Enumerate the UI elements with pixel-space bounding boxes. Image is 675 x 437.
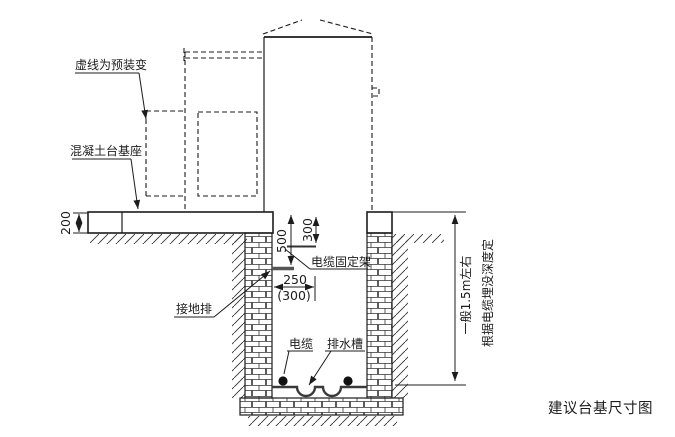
side-notch <box>372 88 379 96</box>
dim-250: 250 <box>283 272 307 287</box>
label-ground-bar: 接地排 <box>176 301 212 316</box>
dim-250-alt: (300) <box>277 288 311 303</box>
figure-title: 建议台基尺寸图 <box>548 400 653 417</box>
cable-dot-left <box>278 376 287 385</box>
pre-install-box-a <box>146 111 185 196</box>
label-cable-bracket: 电缆固定架 <box>311 254 371 269</box>
concrete-slab-left <box>88 212 273 233</box>
soil-hatch-left-wall <box>232 236 245 398</box>
label-dashed-note-leader <box>139 73 146 119</box>
connector-dashed-lines <box>184 48 264 61</box>
label-cable-leader <box>284 351 289 374</box>
dim-500: 500 <box>274 229 289 253</box>
pit-floor-line-with-drain-channels <box>272 387 367 396</box>
dim-200: 200 <box>58 211 73 235</box>
label-dashed-note: 虚线为预装变 <box>75 57 147 72</box>
label-cable: 电缆 <box>289 337 313 351</box>
cable-dot-right <box>343 376 352 385</box>
label-concrete-base-leader <box>131 159 138 209</box>
dim-200-extensions <box>73 213 88 233</box>
soil-hatch-bottom <box>248 416 397 426</box>
note-pit-depth-1: 一般1.5m左右 <box>458 256 473 335</box>
diagram-svg: 200 500 300 250 (300) 一般1.5m左右 根据电缆埋没深度定… <box>0 0 675 437</box>
pit-base-slab <box>240 398 403 415</box>
roof-dashed-outline <box>263 20 373 34</box>
label-cable-bracket-leader <box>285 249 310 269</box>
transformer-outline <box>146 20 379 212</box>
concrete-slab-right <box>367 212 392 233</box>
foundation-diagram: 200 500 300 250 (300) 一般1.5m左右 根据电缆埋没深度定… <box>0 0 675 437</box>
pit-wall-left <box>245 233 272 398</box>
label-drain-leader <box>309 351 331 385</box>
label-drain: 排水槽 <box>327 337 363 351</box>
dim-300: 300 <box>300 218 315 242</box>
pre-install-box-b <box>198 112 257 196</box>
ground-hatch-left-surface <box>90 234 247 244</box>
label-concrete-base: 混凝土台基座 <box>70 143 142 158</box>
note-pit-depth-2: 根据电缆埋没深度定 <box>480 239 495 347</box>
soil-hatch-right-wall <box>392 236 408 398</box>
